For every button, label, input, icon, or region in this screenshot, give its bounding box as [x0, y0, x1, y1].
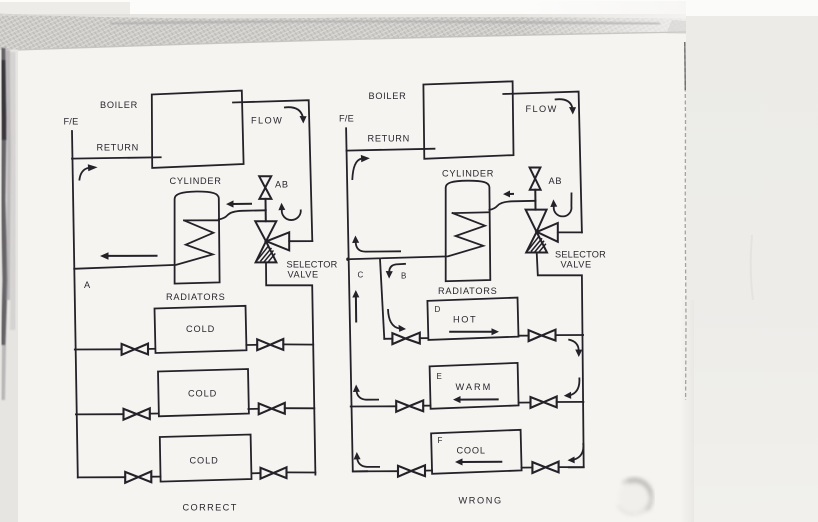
svg-text:C: C [358, 271, 364, 280]
svg-text:CORRECT: CORRECT [183, 503, 238, 513]
svg-text:F/E: F/E [64, 117, 79, 127]
svg-text:BOILER: BOILER [100, 100, 138, 110]
svg-text:F: F [438, 436, 443, 445]
svg-text:COLD: COLD [190, 456, 219, 466]
svg-text:AB: AB [275, 180, 289, 190]
svg-text:COLD: COLD [188, 389, 217, 399]
svg-text:B: B [401, 272, 406, 281]
svg-text:WARM: WARM [456, 382, 493, 392]
svg-text:VALVE: VALVE [561, 260, 592, 270]
svg-text:FLOW: FLOW [526, 104, 558, 114]
svg-text:RETURN: RETURN [97, 143, 139, 153]
svg-text:CYLINDER: CYLINDER [170, 176, 222, 186]
svg-text:FLOW: FLOW [251, 116, 283, 126]
svg-text:VALVE: VALVE [288, 270, 319, 280]
svg-text:WRONG: WRONG [459, 496, 503, 506]
svg-text:CYLINDER: CYLINDER [442, 169, 494, 179]
svg-text:RADIATORS: RADIATORS [166, 292, 226, 302]
svg-text:COLD: COLD [186, 324, 215, 334]
svg-text:F/E: F/E [339, 114, 354, 124]
svg-text:SELECTOR: SELECTOR [287, 260, 338, 270]
svg-text:COOL: COOL [457, 446, 486, 456]
svg-text:D: D [435, 305, 441, 314]
svg-text:A: A [84, 280, 91, 290]
svg-text:BOILER: BOILER [369, 91, 407, 101]
svg-text:RETURN: RETURN [368, 134, 410, 144]
svg-text:RADIATORS: RADIATORS [438, 286, 498, 296]
svg-text:SELECTOR: SELECTOR [555, 250, 606, 260]
svg-text:E: E [437, 372, 442, 381]
svg-text:HOT: HOT [453, 315, 477, 325]
svg-text:AB: AB [549, 176, 563, 186]
